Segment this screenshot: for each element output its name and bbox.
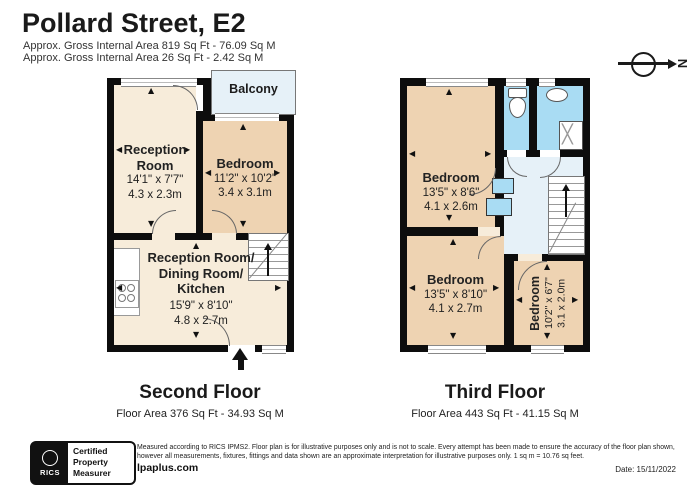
dimension-arrow: ▼: [193, 331, 199, 339]
dimension-arrow: ▼: [240, 220, 246, 228]
balcony-room: Balcony: [211, 70, 296, 115]
rics-logo: RICS: [32, 443, 68, 483]
badge-text: Certified Property Measurer: [68, 443, 134, 483]
dimension-arrow: ▲: [148, 87, 154, 95]
dimension-arrow: ◀: [116, 284, 122, 292]
gross-area-line-1: Approx. Gross Internal Area 819 Sq Ft - …: [23, 40, 276, 52]
door-opening: [518, 254, 542, 261]
bedroom-label: Bedroom 11'2" x 10'2" 3.4 x 3.1m: [203, 156, 287, 201]
dimension-arrow: ▼: [446, 214, 452, 222]
third-floor-caption: Third Floor Floor Area 443 Sq Ft - 41.15…: [355, 382, 635, 420]
door-opening: [507, 150, 526, 157]
dimension-arrow: ▲: [240, 123, 246, 131]
window: [506, 78, 526, 87]
page-title: Pollard Street, E2: [22, 8, 246, 39]
door-opening: [540, 150, 560, 157]
floorplan-page: Pollard Street, E2 Approx. Gross Interna…: [0, 0, 700, 494]
floor-name: Second Floor: [60, 382, 340, 404]
door-opening: [152, 233, 175, 240]
north-label: N: [675, 59, 690, 68]
rics-label: RICS: [40, 468, 60, 477]
second-floor-plan: Balcony ▲ ▼ ◀ ▶: [107, 70, 294, 352]
rics-lion-icon: [42, 450, 58, 466]
balcony-label: Balcony: [212, 82, 295, 97]
dimension-arrow: ▲: [193, 242, 199, 250]
dimension-arrow: ▲: [450, 238, 456, 246]
window: [531, 345, 564, 354]
window: [121, 78, 197, 87]
second-floor-caption: Second Floor Floor Area 376 Sq Ft - 34.9…: [60, 382, 340, 420]
dimension-arrow: ◀: [409, 150, 415, 158]
dimension-arrow: ▼: [148, 220, 154, 228]
floor-name: Third Floor: [355, 382, 635, 404]
stairs-icon: [548, 176, 585, 255]
reception-room-label: Reception Room 14'1" x 7'7" 4.3 x 2.3m: [114, 142, 196, 203]
door-opening: [478, 227, 500, 236]
rics-certified-badge: RICS Certified Property Measurer: [30, 441, 136, 485]
compass-circle: [631, 52, 656, 77]
website-link[interactable]: lpaplus.com: [137, 462, 198, 474]
kitchen-room-label: Reception Room/ Dining Room/ Kitchen 15'…: [125, 250, 277, 328]
floor-area: Floor Area 376 Sq Ft - 34.93 Sq M: [60, 408, 340, 420]
window: [426, 78, 488, 87]
dimension-arrow: ▲: [446, 88, 452, 96]
cupboard: [492, 178, 514, 194]
sink-icon: [546, 88, 568, 102]
bedroom-one-label: Bedroom 13'5" x 8'6" 4.1 x 2.6m: [407, 170, 495, 215]
dimension-arrow: ▼: [450, 332, 456, 340]
window: [428, 345, 486, 354]
window: [539, 78, 555, 87]
bedroom-two-label: Bedroom 13'5" x 8'10" 4.1 x 2.7m: [407, 272, 504, 317]
compass-icon: N: [610, 45, 694, 85]
door-opening: [212, 233, 236, 240]
entry-arrow-icon: [232, 348, 248, 360]
window: [262, 345, 286, 354]
gross-area-line-2: Approx. Gross Internal Area 26 Sq Ft - 2…: [23, 52, 263, 64]
disclaimer-text: Measured according to RICS IPMS2. Floor …: [137, 443, 682, 462]
floor-area: Floor Area 443 Sq Ft - 41.15 Sq M: [355, 408, 635, 420]
date-label: Date: 15/11/2022: [460, 465, 676, 474]
dimension-arrow: ▶: [485, 150, 491, 158]
entry-arrow-stem: [238, 360, 244, 370]
shower-icon: ╳: [559, 121, 583, 150]
bedroom-three-label: Bedroom 10'2" x 6'7" 3.1 x 2.0m: [514, 261, 583, 345]
third-floor-plan: ╳ ▲ ▼ ◀ ▶ ▲ ▼ ◀ ▶ ▲ ▼ ◀ ▶: [400, 70, 590, 352]
